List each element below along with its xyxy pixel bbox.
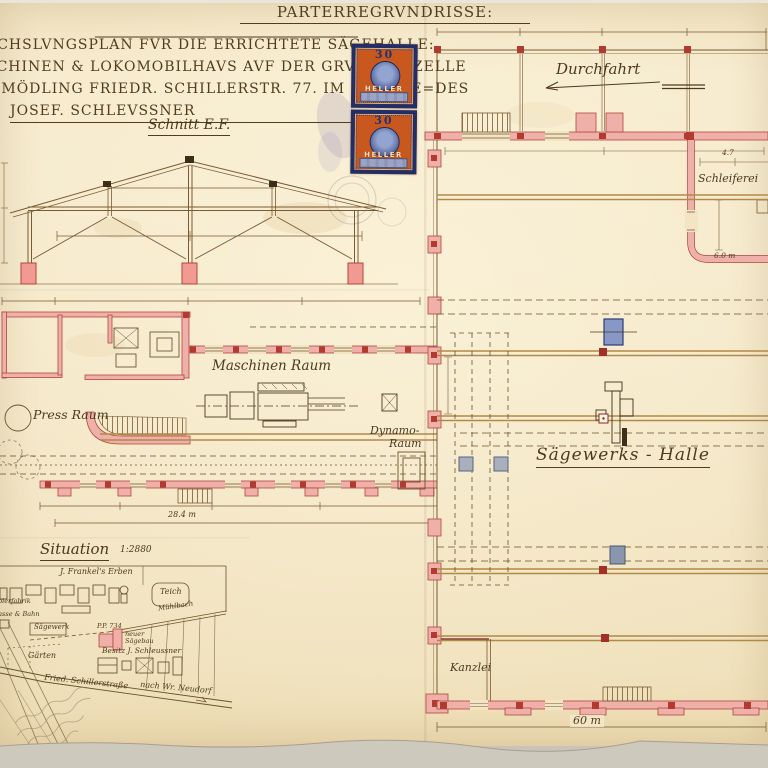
hall-dashed-tracks — [437, 300, 768, 561]
truss-footings — [21, 263, 363, 284]
revenue-stamp: 30 HELLER — [351, 44, 418, 109]
loading-ramp-hatch — [462, 113, 510, 132]
durchfahrt-arrow — [546, 82, 705, 90]
revenue-stamp: 30 HELLER — [350, 110, 417, 175]
saegewerk-label: Sägewerk — [34, 624, 69, 632]
schleiferei-width-dimension: 4.7 — [722, 149, 734, 157]
parcel-number-label: P.P. 734 — [97, 623, 122, 630]
stamp-value: 30 — [356, 48, 414, 62]
stamp-bottom-band — [359, 158, 407, 169]
truss-joint-nodes — [103, 156, 277, 187]
saegewerk-halle-label: Sägewerks - Halle — [536, 446, 710, 468]
stamp-value: 30 — [355, 114, 413, 128]
stair-hatch — [98, 416, 186, 435]
machine-house-width-dimension: 28.4 m — [165, 511, 199, 520]
schleiferei-label: Schleiferei — [698, 173, 758, 185]
entrance-steps-hatch — [178, 489, 212, 503]
gray-foundation-block — [494, 457, 508, 471]
situation-title: Situation — [40, 541, 109, 561]
besitz-label: Besitz J. Schleussner — [102, 647, 181, 655]
besitz-buildings — [98, 657, 182, 675]
steam-engine-drawing — [205, 383, 397, 427]
stamp-bottom-band — [360, 92, 408, 103]
situation-scale: 1:2880 — [120, 546, 152, 556]
scan-bottom-edge — [0, 740, 768, 768]
gray-foundation-block — [610, 546, 625, 564]
neuer-saegebau-label-2: Sägebau — [125, 638, 154, 645]
dynamo-raum-label-1: Dynamo- — [370, 425, 419, 437]
dynamo-raum-label-2: Raum — [389, 438, 422, 450]
durchfahrt-label: Durchfahrt — [556, 61, 640, 78]
gray-foundation-block — [459, 457, 473, 471]
strasse-bahn-label: Strasse & Bahn — [0, 611, 40, 618]
hall-width-dimension: 60 m — [570, 715, 604, 727]
teich-label: Teich — [160, 588, 182, 597]
frankel-erben-label: J. Frankel's Erben — [60, 568, 133, 577]
revenue-stamp-pair: 30 HELLER 30 HELLER — [350, 44, 417, 177]
saw-machine-drawing — [596, 382, 633, 443]
press-circle — [5, 405, 31, 431]
press-raum-label: Press Raum — [33, 408, 109, 422]
schleiferei-depth-dimension: 6.0 m — [714, 252, 735, 260]
maschinen-raum-label: Maschinen Raum — [212, 359, 331, 374]
south-steps-hatch — [603, 687, 651, 701]
gaerten-label: Gärten — [28, 652, 56, 661]
kanzlei-label: Kanzlei — [450, 662, 491, 674]
section-label: Schnitt E.F. — [148, 118, 230, 136]
page-title: PARTERREGRVNDRISSE: — [240, 4, 530, 24]
papierfabrik-label: Papierfabrik — [0, 598, 31, 605]
saw-hall-plan — [425, 28, 768, 732]
scanned-plan-document: PARTERREGRVNDRISSE: ECHSLVNGSPLAN FVR DI… — [0, 0, 768, 768]
